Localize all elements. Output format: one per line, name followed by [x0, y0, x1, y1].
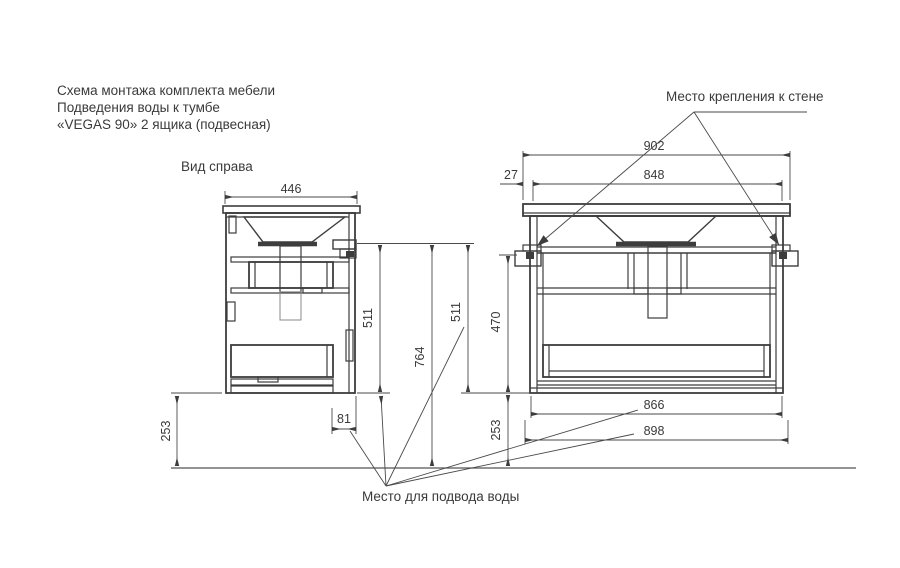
wall-mount-label: Место крепления к стене	[666, 89, 824, 104]
side-rail-block	[229, 216, 236, 233]
dim-side-height: 511	[361, 308, 375, 328]
side-bottom-band-2	[231, 386, 333, 393]
front-drain-pipe	[648, 246, 667, 318]
dim-side-floor-clearance: 253	[159, 421, 173, 442]
dim-body-height: 470	[489, 312, 503, 333]
dim-overall-width: 898	[644, 424, 665, 438]
installation-diagram-page: Схема монтажа комплекта мебели Подведени…	[0, 0, 900, 568]
side-upper-drawer	[249, 262, 333, 288]
wall-mount-arrow-left	[537, 235, 549, 246]
side-view-dimensions: 446 253 81 511 764	[159, 182, 474, 466]
side-lower-drawer	[231, 345, 333, 377]
front-rail-block-right	[667, 288, 681, 294]
side-view-drawing	[223, 206, 360, 393]
dim-front-floor-clearance: 253	[489, 420, 503, 441]
front-rail-block-left	[634, 288, 648, 294]
side-drain-pipe-lower	[280, 292, 301, 320]
side-drain-pipe	[280, 246, 301, 292]
dim-mount-offset: 27	[504, 168, 518, 182]
front-view-dimensions: 902 848 27 511 470 253 866 898	[449, 139, 790, 466]
front-basin	[596, 216, 716, 242]
dim-side-depth: 446	[281, 182, 302, 196]
side-view-label: Вид справа	[181, 159, 253, 174]
dim-mount-span: 848	[644, 168, 665, 182]
dim-inner-width: 866	[644, 398, 665, 412]
water-supply-label: Место для подвода воды	[362, 489, 519, 504]
title-line-2: Подведения воды к тумбе	[57, 100, 220, 115]
title-block: Схема монтажа комплекта мебели Подведени…	[57, 83, 275, 132]
installation-diagram: Схема монтажа комплекта мебели Подведени…	[0, 0, 900, 568]
dim-mount-height: 511	[449, 302, 463, 322]
dim-water-offset: 81	[337, 412, 351, 426]
water-supply-callout: Место для подвода воды	[350, 327, 638, 504]
front-view-drawing	[515, 204, 798, 393]
front-countertop	[523, 204, 790, 216]
side-countertop	[223, 206, 360, 213]
side-basin	[244, 217, 345, 242]
side-bottom-band-1	[231, 379, 333, 385]
wall-mount-arrow-right	[769, 233, 779, 245]
front-lower-drawer	[543, 345, 770, 377]
title-line-1: Схема монтажа комплекта мебели	[57, 83, 275, 98]
side-wall-bracket	[333, 240, 356, 258]
title-line-3: «VEGAS 90» 2 ящика (подвесная)	[57, 117, 271, 132]
side-left-notch	[227, 302, 235, 321]
wall-mount-callout: Место крепления к стене	[537, 89, 824, 246]
front-center-dividers	[628, 253, 687, 289]
dim-total-height: 764	[413, 347, 427, 368]
